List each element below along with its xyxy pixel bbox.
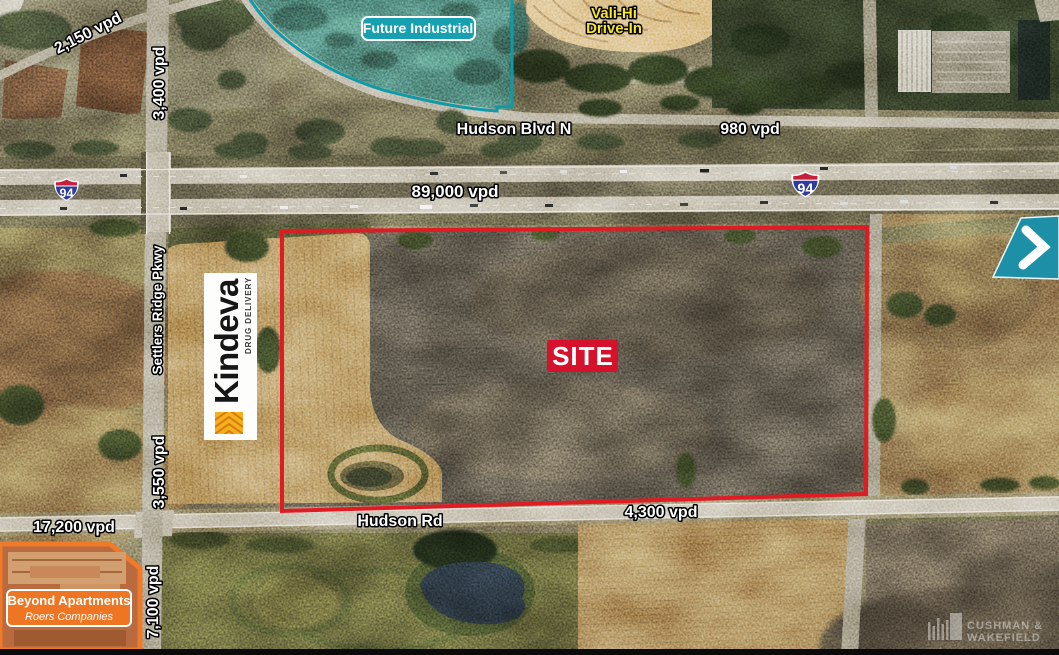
svg-text:Kindeva: Kindeva (208, 278, 245, 404)
svg-text:SITE: SITE (552, 341, 614, 371)
svg-text:Settlers Ridge Pkwy: Settlers Ridge Pkwy (150, 245, 165, 375)
svg-text:980 vpd: 980 vpd (720, 121, 780, 138)
svg-text:Hudson Blvd N: Hudson Blvd N (457, 121, 572, 138)
svg-text:3,400 vpd: 3,400 vpd (151, 47, 168, 120)
svg-text:17,200 vpd: 17,200 vpd (33, 519, 115, 536)
svg-text:CUSHMAN &: CUSHMAN & (967, 620, 1043, 632)
svg-text:Beyond Apartments: Beyond Apartments (7, 593, 130, 608)
svg-text:Future Industrial: Future Industrial (363, 20, 473, 36)
svg-text:94: 94 (797, 181, 813, 197)
svg-text:4,300 vpd: 4,300 vpd (625, 504, 698, 521)
svg-text:94: 94 (60, 187, 74, 201)
svg-text:3,550 vpd: 3,550 vpd (151, 436, 168, 509)
svg-text:7,100 vpd: 7,100 vpd (145, 566, 162, 639)
svg-text:Hudson Rd: Hudson Rd (357, 513, 442, 530)
svg-text:Drive-In: Drive-In (586, 20, 642, 37)
svg-text:89,000 vpd: 89,000 vpd (412, 182, 499, 201)
svg-text:Roers Companies: Roers Companies (25, 611, 114, 623)
svg-text:DRUG DELIVERY: DRUG DELIVERY (244, 277, 253, 354)
svg-text:WAKEFIELD: WAKEFIELD (967, 632, 1041, 644)
